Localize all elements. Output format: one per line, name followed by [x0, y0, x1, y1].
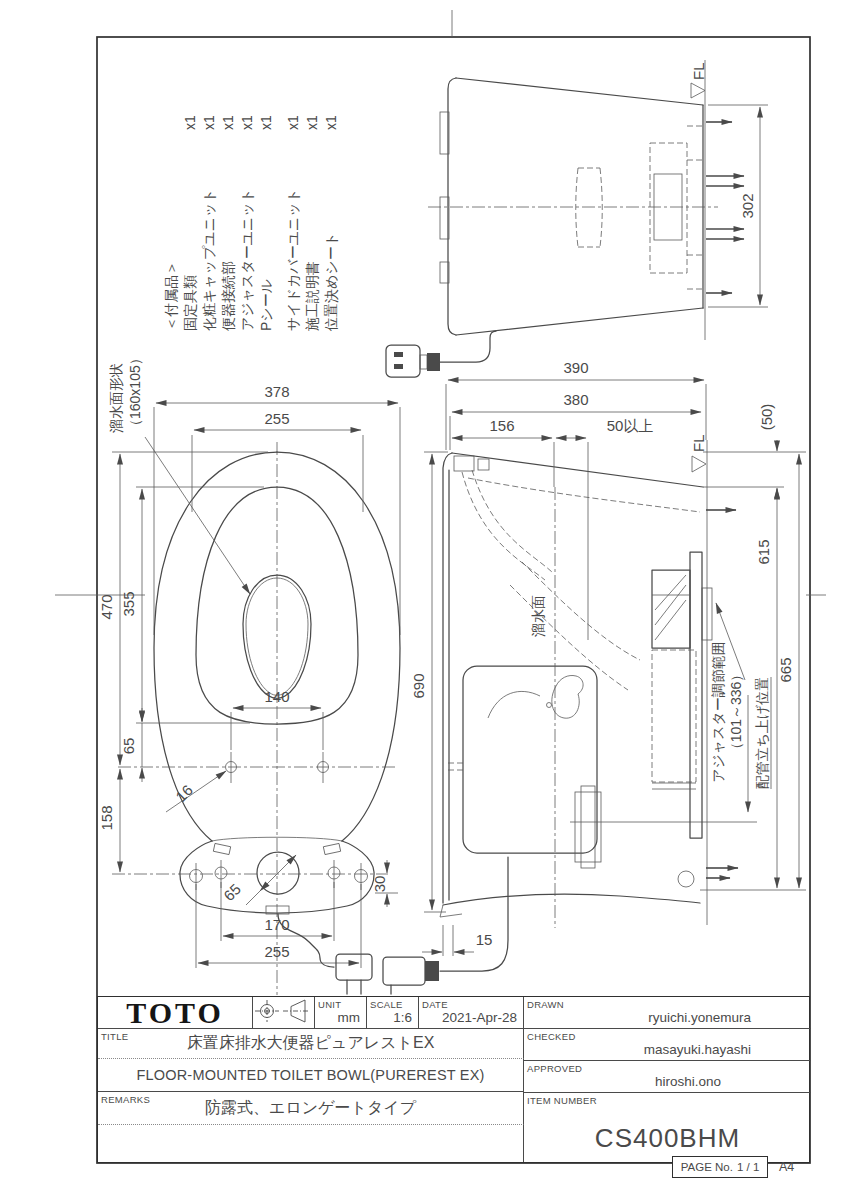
- side-inner-slant-dashed: [468, 478, 700, 512]
- side-outlet-spigot2: [581, 786, 595, 868]
- adjuster-range-label: アジャスター調節範囲: [710, 641, 726, 783]
- drawn-value: ryuichi.yonemura: [524, 1010, 751, 1025]
- scale-value: 1:6: [367, 1010, 412, 1025]
- rear-plug-slot: [394, 352, 403, 357]
- side-bowl-dot: [547, 703, 552, 708]
- rear-cord: [440, 331, 496, 362]
- accessory-qty: x1: [201, 115, 217, 130]
- date-cell: DATE 2021-Apr-28: [419, 997, 524, 1029]
- unit-cell: UNIT mm: [315, 997, 367, 1029]
- rear-plug: [386, 345, 420, 377]
- title-en: FLOOR-MOUNTED TOILET BOWL(PUREREST EX): [136, 1067, 484, 1083]
- side-inlet-hole: [454, 456, 474, 471]
- unit-value: mm: [315, 1010, 360, 1025]
- remarks-value: 防露式、エロンゲートタイプ: [205, 1098, 416, 1119]
- side-water-label: 溜水面: [530, 595, 546, 637]
- dim-65-left: 65: [120, 738, 137, 755]
- side-bottom-profile: [443, 894, 700, 905]
- dim-50paren: (50): [758, 404, 775, 431]
- accessory-qty: x1: [285, 115, 301, 130]
- side-inlet-hole2: [478, 459, 489, 470]
- empty-cell: [98, 1125, 524, 1162]
- drawing-frame: [55, 10, 826, 1163]
- checked-value: masayuki.hayashi: [524, 1042, 751, 1057]
- dim-50min: 50以上: [607, 417, 654, 434]
- dim-158: 158: [98, 805, 115, 830]
- rear-outline-top: [456, 78, 703, 105]
- rear-view: FL 302: [386, 60, 768, 377]
- rear-trapway-dashed: [576, 168, 603, 247]
- side-bowl-opening: [463, 666, 597, 853]
- side-caulk-circle: [678, 871, 694, 887]
- accessory-item: 化粧キャップユニット: [201, 188, 217, 331]
- date-value: 2021-Apr-28: [419, 1010, 517, 1025]
- plan-plug: [336, 954, 372, 980]
- dim-255-top: 255: [264, 410, 289, 427]
- approved-value: hiroshi.ono: [524, 1074, 721, 1089]
- dim-140: 140: [264, 688, 289, 705]
- scale-label: SCALE: [370, 999, 403, 1010]
- dim-30: 30: [371, 876, 388, 893]
- checked-label: CHECKED: [527, 1031, 576, 1042]
- dim-690: 690: [410, 673, 427, 698]
- title-label: TITLE: [101, 1031, 128, 1042]
- item-number-cell: ITEM NUMBER CS400BHM: [524, 1093, 811, 1162]
- accessory-qty: x1: [258, 115, 274, 130]
- dim-615: 615: [755, 539, 772, 564]
- approved-label: APPROVED: [527, 1063, 582, 1074]
- page-label: PAGE No.: [681, 1161, 733, 1173]
- dim-378: 378: [264, 383, 289, 400]
- title-block: TOTO UNIT mm SCALE 1:6 DATE 2021-Apr-28 …: [97, 996, 810, 1163]
- side-cord: [440, 857, 508, 971]
- side-front-foot: [440, 905, 462, 917]
- accessory-item: 位置決めシート: [323, 232, 339, 332]
- accessory-item: Pシール: [258, 279, 274, 331]
- page-value: 1 / 1: [737, 1161, 759, 1173]
- title-en-cell: FLOOR-MOUNTED TOILET BOWL(PUREREST EX): [98, 1059, 524, 1092]
- adjuster-range-value: （101～336）: [728, 668, 744, 757]
- rear-flange-dashed: [650, 143, 687, 273]
- side-floor-triangle-icon: [692, 456, 706, 472]
- accessory-qty: x1: [323, 115, 339, 130]
- rear-flange-lines: [687, 126, 705, 289]
- item-number-value: CS400BHM: [524, 1123, 811, 1154]
- dim-665: 665: [777, 657, 794, 682]
- unit-label: UNIT: [318, 999, 341, 1010]
- page-number-box: PAGE No. 1 / 1: [672, 1156, 768, 1178]
- side-adjuster-hatch: [652, 575, 690, 640]
- dim-355: 355: [120, 591, 137, 616]
- logo-cell: TOTO: [98, 997, 253, 1029]
- plan-view: 溜水面形状 （160x105） 378 255 470 355 65 158 1…: [98, 351, 400, 995]
- accessory-qty: x1: [239, 115, 255, 130]
- accessory-item: 便器接続部: [220, 261, 236, 331]
- paper-size-label: A4: [779, 1160, 794, 1174]
- pipe-position-label: 配管立ち上げ位置: [754, 677, 770, 790]
- scale-cell: SCALE 1:6: [367, 997, 419, 1029]
- dim-156: 156: [489, 417, 514, 434]
- side-bowl-curve: [488, 691, 540, 718]
- approved-cell: APPROVED hiroshi.ono: [524, 1061, 811, 1093]
- dim-390: 390: [563, 359, 588, 376]
- dim-15: 15: [476, 931, 493, 948]
- rear-plug-boot: [427, 353, 440, 371]
- toto-logo: TOTO: [126, 996, 224, 1030]
- dim-255-bottom: 255: [264, 943, 289, 960]
- accessory-qty: x1: [304, 115, 320, 130]
- accessory-header: ＜付属品＞: [163, 261, 179, 331]
- dim-380: 380: [563, 391, 588, 408]
- dim-65-drain: 65: [220, 880, 244, 904]
- drawn-label: DRAWN: [527, 999, 564, 1010]
- dim-302: 302: [739, 193, 756, 218]
- accessory-item: 固定具類: [182, 275, 198, 331]
- rear-floor-triangle-icon: [691, 83, 705, 98]
- side-mount-plate: [690, 552, 702, 838]
- side-floor-label: FL: [690, 434, 707, 452]
- accessory-list: ＜付属品＞ 固定具類 化粧キャップユニット 便器接続部 アジャスターユニット P…: [163, 115, 339, 332]
- rear-plug-slot: [394, 364, 403, 369]
- side-view: FL 溜水面: [383, 359, 806, 994]
- third-angle-projection-icon: [253, 997, 311, 1025]
- leader-line: [246, 891, 260, 905]
- side-bowl-detail: [552, 675, 583, 718]
- plan-base-notch: [323, 843, 340, 854]
- side-plug: [383, 957, 425, 985]
- item-number-label: ITEM NUMBER: [527, 1095, 597, 1106]
- side-front-face: [443, 453, 452, 903]
- dim-line-drain: [260, 855, 296, 891]
- dim-16: 16: [172, 781, 196, 805]
- rear-plug-neck: [420, 355, 427, 369]
- water-shape-label: 溜水面形状: [108, 363, 124, 433]
- water-shape-size: （160x105）: [127, 351, 143, 433]
- plan-outer-left: [154, 452, 277, 841]
- remarks-cell: REMARKS 防露式、エロンゲートタイプ: [98, 1092, 524, 1125]
- leader-line: [145, 437, 250, 594]
- side-plug-boot: [425, 961, 439, 981]
- date-label: DATE: [422, 999, 448, 1010]
- projection-symbol-cell: [253, 997, 315, 1029]
- title-ja-cell: TITLE 床置床排水大便器ピュアレストEX: [98, 1029, 524, 1059]
- accessory-item: サイドカバーユニット: [285, 188, 301, 331]
- plan-base-notch: [213, 843, 230, 854]
- drawing-sheet: ＜付属品＞ 固定具類 化粧キャップユニット 便器接続部 アジャスターユニット P…: [0, 0, 848, 1200]
- side-supply-dashed: [462, 470, 552, 580]
- dim-470: 470: [98, 594, 115, 619]
- remarks-label: REMARKS: [101, 1094, 150, 1105]
- accessory-item: 施工説明書: [304, 261, 320, 331]
- plan-outer-right: [277, 452, 400, 841]
- rear-floor-label: FL: [690, 62, 707, 80]
- checked-cell: CHECKED masayuki.hayashi: [524, 1029, 811, 1061]
- title-ja: 床置床排水大便器ピュアレストEX: [187, 1033, 435, 1054]
- drawn-cell: DRAWN ryuichi.yonemura: [524, 997, 811, 1029]
- accessory-qty: x1: [182, 115, 198, 130]
- dim-170: 170: [264, 916, 289, 933]
- accessory-qty: x1: [220, 115, 236, 130]
- accessory-item: アジャスターユニット: [239, 188, 255, 331]
